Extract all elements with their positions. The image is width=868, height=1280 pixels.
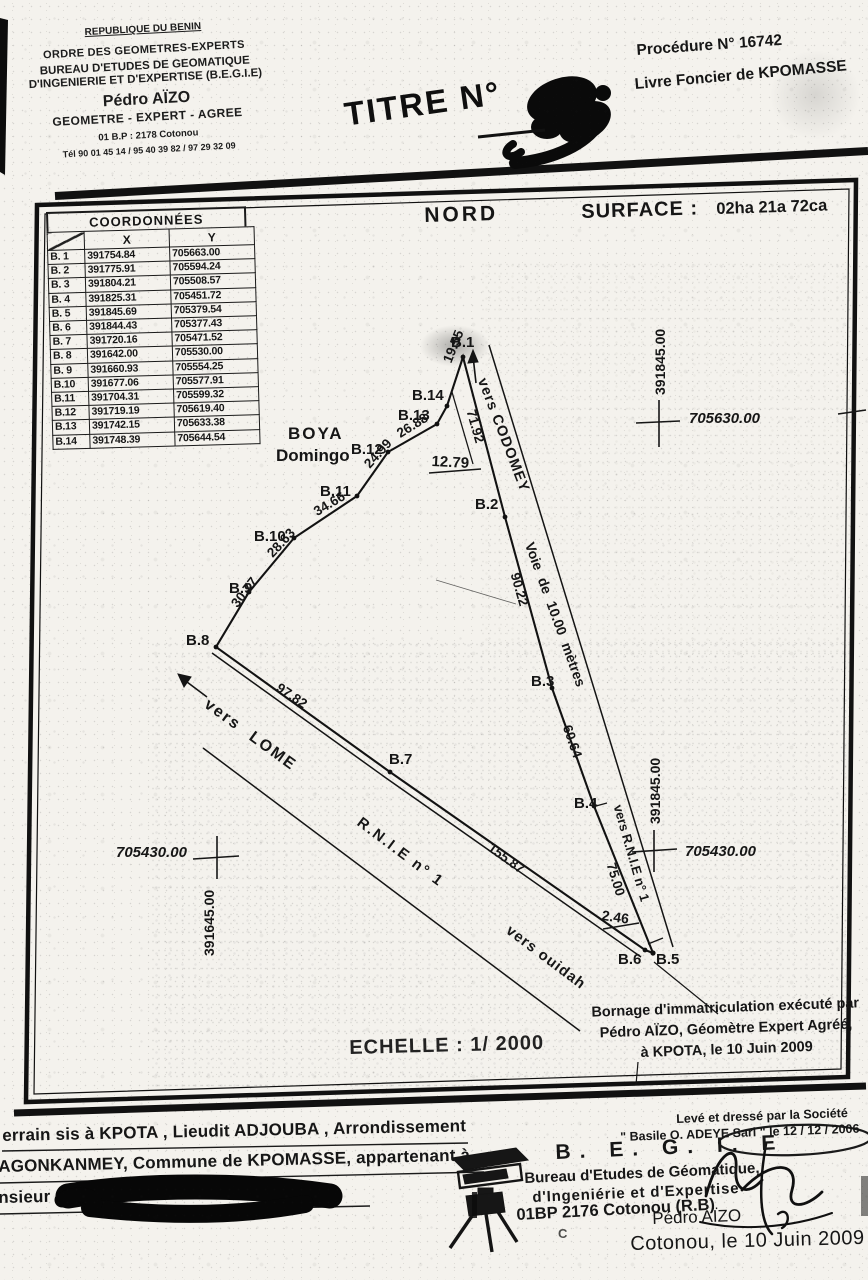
linework-layer [0,0,868,1280]
col-header-y: Y [169,227,254,247]
cell-id: B.14 [53,434,90,449]
cell-id: B. 1 [48,249,85,264]
cell-id: B. 3 [48,278,85,293]
parcel-vertices [214,355,656,956]
surveyor-stamp: REPUBLIQUE DU BENIN ORDRE DES GEOMETRES-… [25,18,268,161]
crease-line [436,580,516,604]
point-label-b6: B.6 [618,951,641,968]
cell-id: B.11 [52,391,89,406]
cell-y: 705644.54 [175,429,260,446]
cell-id: B. 4 [49,292,86,307]
point-label-b2: B.2 [475,496,498,513]
cell-id: B.13 [52,420,89,435]
point-label-b14: B.14 [412,387,444,404]
col-header-x: X [84,229,169,249]
tick-bottom [648,938,663,944]
locality-line2: Domingo [276,446,350,466]
footer-terrain-line3: nsieur [0,1187,51,1208]
coords-table-body: B. 1391754.84705663.00B. 2391775.9170559… [48,245,260,450]
point-label-b3: B.3 [531,673,554,690]
scanned-land-title-document: { "header": { "stamp": { "country": "REP… [0,0,868,1280]
cell-id: B. 2 [48,264,85,279]
tick-b4 [596,803,607,806]
grid-x-left: 391645.00 [201,890,217,956]
lome-arrow-head [178,674,191,687]
signer-name: Pédro AÏZO [652,1206,741,1229]
surface-label: SURFACE : [581,197,698,224]
redaction-blob [62,1187,330,1214]
cross-left [193,836,239,879]
point-label-b8: B.8 [186,632,209,649]
grid-x-mid: 391845.00 [647,758,663,824]
cross-top-right [636,400,680,447]
distance-tie-b2: 12.79 [431,453,469,472]
diagonal-cell [47,231,84,250]
cell-id: B. 9 [51,363,88,378]
surface-value: 02ha 21a 72ca [716,197,828,219]
grid-y-right: 705430.00 [685,843,756,860]
grid-y-top: 705630.00 [689,410,760,427]
begie-fragment: C [558,1226,567,1241]
rnie-far-edge [203,748,580,1031]
locality-line1: BOYA [288,424,344,444]
cell-x: 391748.39 [90,432,175,449]
grid-crosses [193,400,866,879]
parcel-boundary [214,355,656,956]
cell-id: B. 8 [50,349,87,364]
bornage-note: Bornage d'immatriculation exécuté par Pé… [584,993,868,1066]
cell-id: B.10 [51,377,88,392]
cell-id: B.12 [52,406,89,421]
point-label-b4: B.4 [574,795,597,812]
grid-x-top: 391845.00 [652,329,668,395]
codomey-arrow-head [468,350,478,363]
cell-id: B. 5 [49,306,86,321]
point-label-b7: B.7 [389,751,412,768]
nord-label: NORD [424,202,498,228]
coordinates-table: COORDONNÉES X Y B. 1391754.84705663.00B.… [46,206,261,450]
cell-id: B. 6 [50,320,87,335]
point-label-b5: B.5 [656,951,679,968]
grid-y-left: 705430.00 [116,844,187,861]
top-edge-artifact [55,151,868,196]
cell-id: B. 7 [50,335,87,350]
